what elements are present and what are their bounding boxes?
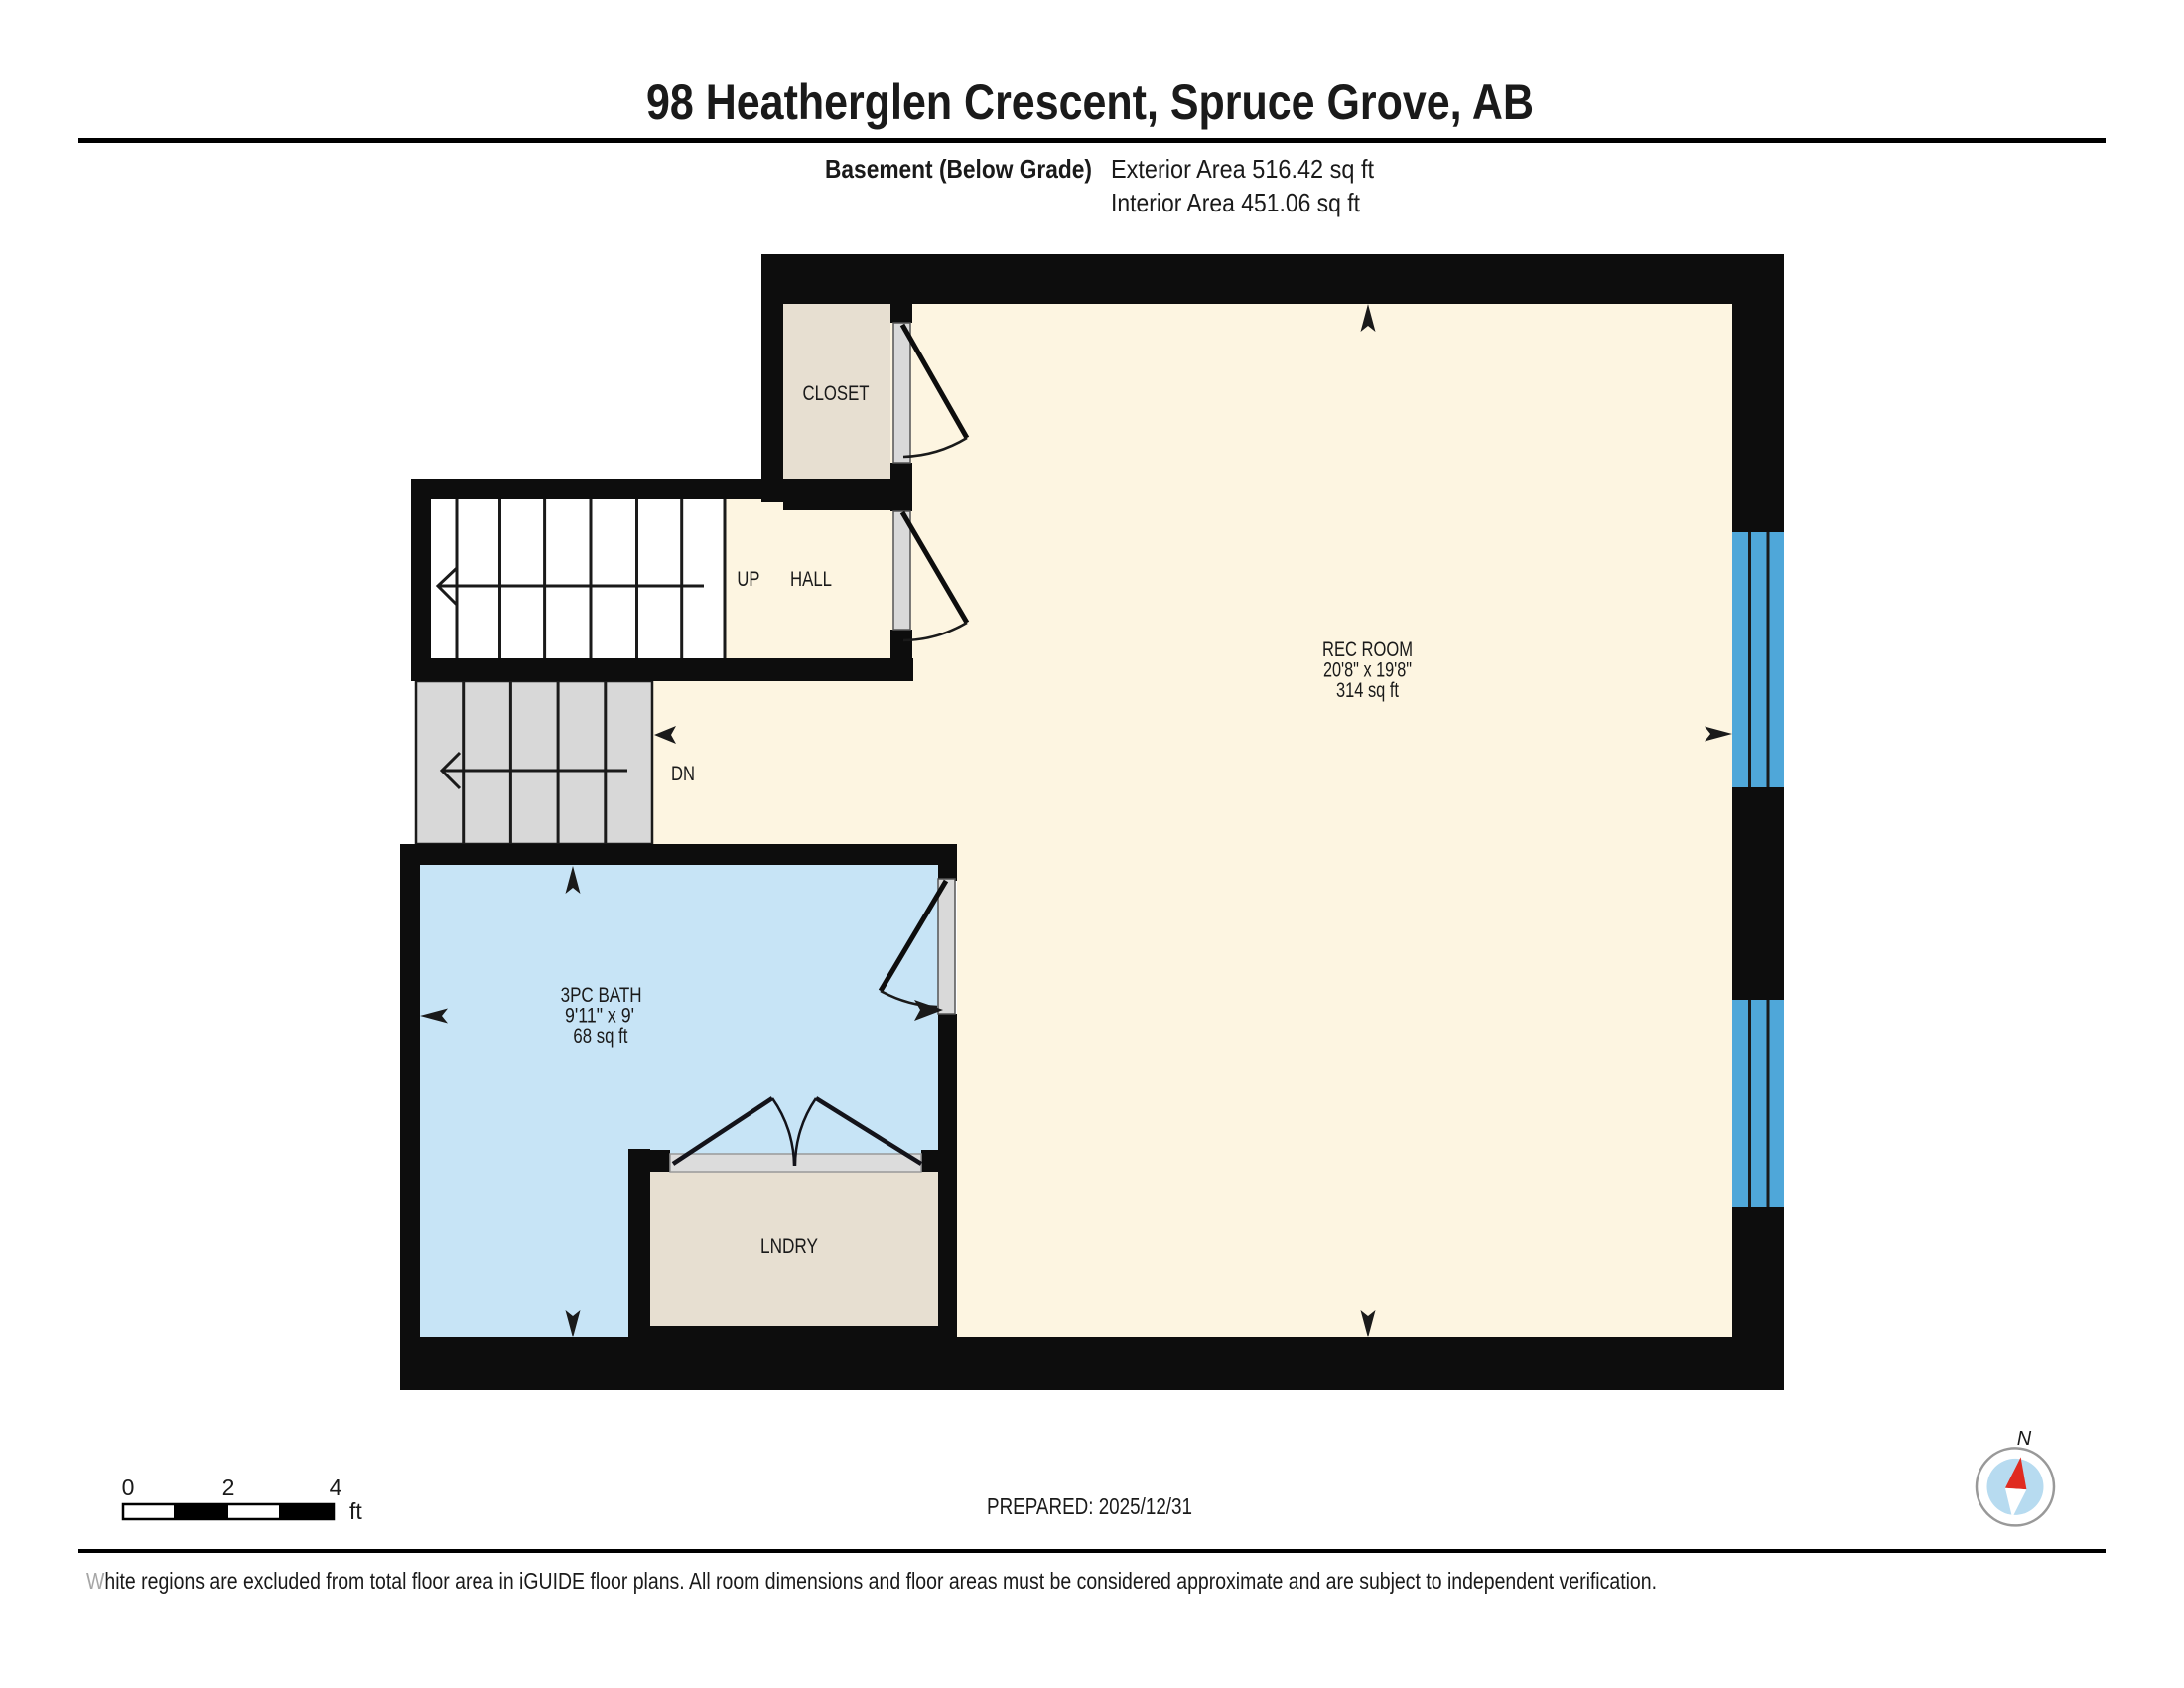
svg-text:Exterior Area 516.42 sq ft: Exterior Area 516.42 sq ft (1111, 154, 1375, 184)
svg-text:4: 4 (330, 1475, 342, 1500)
svg-text:0: 0 (122, 1475, 135, 1500)
svg-text:CLOSET: CLOSET (803, 382, 870, 405)
svg-text:68 sq ft: 68 sq ft (573, 1025, 627, 1048)
svg-text:2: 2 (222, 1475, 235, 1500)
svg-text:PREPARED: 2025/12/31: PREPARED: 2025/12/31 (987, 1493, 1192, 1519)
svg-text:314 sq ft: 314 sq ft (1336, 679, 1399, 702)
svg-text:Interior Area 451.06 sq ft: Interior Area 451.06 sq ft (1111, 188, 1361, 217)
svg-text:DN: DN (671, 763, 695, 785)
svg-text:Basement (Below Grade): Basement (Below Grade) (825, 154, 1092, 184)
svg-text:HALL: HALL (790, 568, 832, 591)
svg-text:UP: UP (737, 568, 759, 591)
svg-text:N: N (2017, 1428, 2032, 1450)
svg-text:White regions are excluded fro: White regions are excluded from total fl… (86, 1568, 1657, 1594)
svg-text:LNDRY: LNDRY (760, 1235, 818, 1258)
svg-text:98 Heatherglen Crescent, Spruc: 98 Heatherglen Crescent, Spruce Grove, A… (646, 74, 1534, 130)
svg-text:ft: ft (349, 1498, 362, 1524)
